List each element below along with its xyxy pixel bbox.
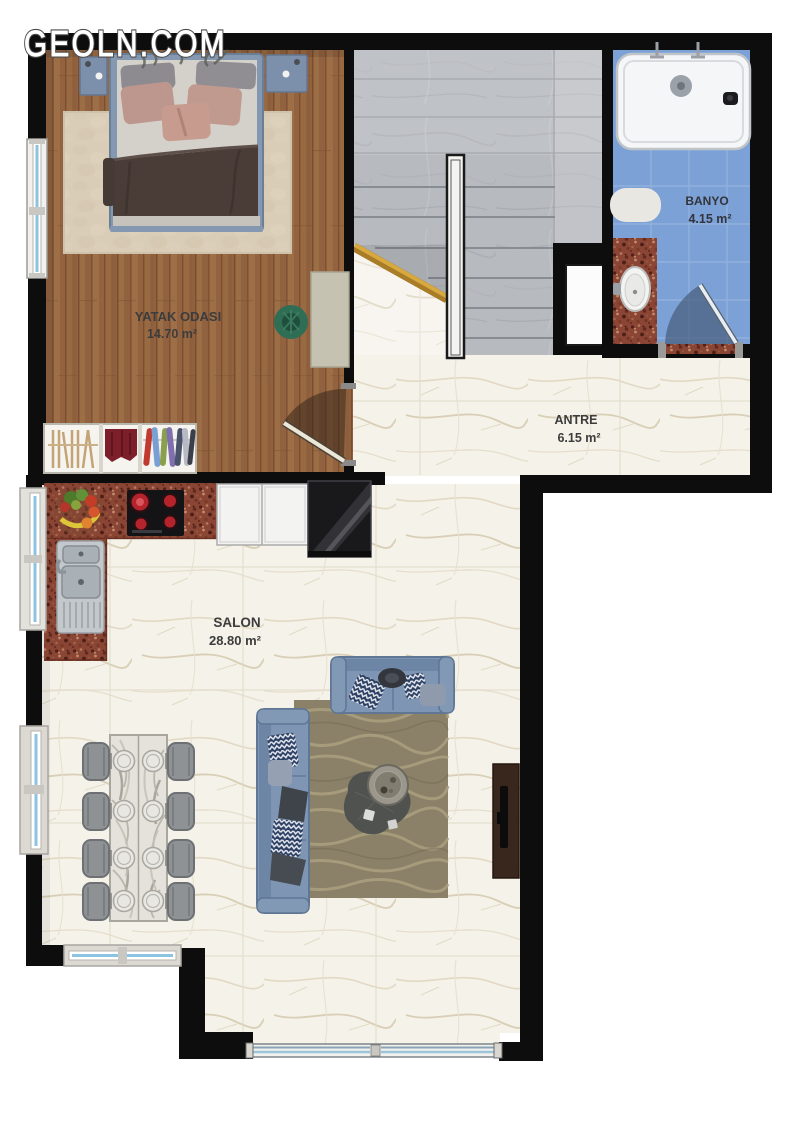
- svg-text:YATAK ODASI: YATAK ODASI: [135, 309, 221, 324]
- svg-text:ANTRE: ANTRE: [554, 413, 597, 427]
- svg-text:4.15 m²: 4.15 m²: [688, 212, 731, 226]
- svg-text:BANYO: BANYO: [685, 194, 728, 208]
- svg-text:SALON: SALON: [213, 615, 260, 630]
- svg-text:GEOLN.COM: GEOLN.COM: [24, 23, 227, 64]
- svg-text:6.15 m²: 6.15 m²: [557, 431, 600, 445]
- svg-text:14.70 m²: 14.70 m²: [147, 327, 197, 341]
- svg-text:28.80 m²: 28.80 m²: [209, 633, 262, 648]
